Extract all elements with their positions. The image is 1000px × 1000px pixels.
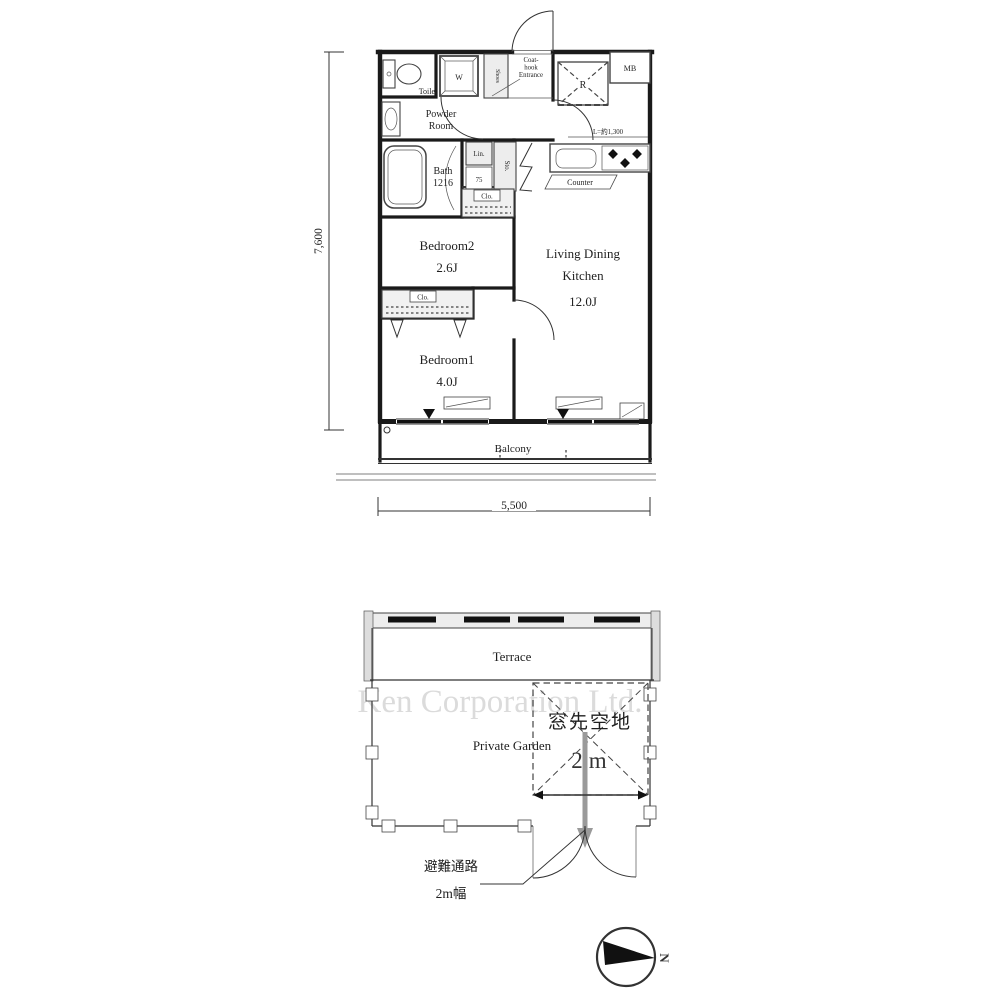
terrace: Terrace	[370, 628, 654, 680]
storage-bifold-door	[520, 143, 532, 191]
garden-gate	[533, 826, 636, 878]
entrance-label-line3: Entrance	[519, 72, 543, 79]
entrance-door-arc	[512, 11, 553, 54]
evacuation-label-leader	[480, 830, 585, 884]
height-dimension-label: 7,600	[313, 228, 325, 254]
compass-north-label: N	[657, 953, 672, 963]
toilet-fixture	[383, 60, 421, 88]
bedroom1-door-arc	[514, 300, 554, 340]
entrance-label-line1: Coat-	[523, 57, 539, 64]
entrance-label-line2: hook	[524, 65, 538, 72]
meter-box: MB	[610, 52, 650, 83]
bedroom1-closet: Clo.	[382, 290, 473, 337]
lower-site-plan: Terrace Private Garden 窓先空地 2m	[364, 611, 660, 901]
bedroom1-window	[396, 419, 489, 424]
bedroom2-closet: Clo.	[462, 189, 514, 217]
bedroom1-closet-label: Clo.	[417, 295, 429, 302]
ldk-size-label: 12.0J	[569, 294, 597, 309]
washbasin	[382, 102, 400, 136]
refrigerator-label: R	[580, 80, 587, 91]
evacuation-label-line2: 2m幅	[436, 886, 467, 901]
open-space-width-arrow	[533, 791, 648, 800]
bedroom2-size-label: 2.6J	[436, 260, 457, 275]
counter-label: Counter	[567, 178, 593, 187]
compass-needle	[603, 941, 655, 965]
open-space-width-label: 2m	[571, 748, 612, 773]
height-dimension: 7,600	[313, 52, 344, 430]
bath-label: Bath	[434, 166, 453, 177]
site-building-wall	[364, 611, 660, 681]
balcony-drain	[384, 427, 390, 433]
linen-label: Lin.	[473, 151, 484, 158]
storage-label: Sto.	[503, 161, 510, 172]
evacuation-label-line1: 避難通路	[424, 859, 478, 874]
dimension-annotations: 7,600 5,500	[313, 52, 650, 516]
ldk-label-line2: Kitchen	[562, 268, 604, 283]
balcony-label: Balcony	[495, 443, 532, 455]
ldk-label-line1: Living Dining	[546, 246, 621, 261]
linen-width-label: 75	[476, 177, 483, 184]
compass: N	[597, 928, 672, 986]
powder-room-label-line1: Powder	[426, 109, 457, 120]
bedroom1-size-label: 4.0J	[436, 374, 457, 389]
bedroom2-label: Bedroom2	[420, 238, 475, 253]
washer-label: W	[455, 73, 463, 82]
bedroom1-label: Bedroom1	[420, 352, 475, 367]
open-space-label: 窓先空地	[548, 711, 632, 733]
meter-box-label: MB	[624, 64, 636, 73]
ground-lines	[336, 474, 656, 480]
ldk-window	[547, 419, 639, 424]
kitchen-counter: L=約1,300 Counter	[545, 127, 650, 189]
terrace-label: Terrace	[493, 649, 532, 664]
width-dimension: 5,500	[378, 497, 650, 516]
toilet-label: Toilet	[419, 87, 438, 96]
balcony: Balcony	[378, 421, 652, 464]
private-garden-label: Private Garden	[473, 738, 552, 753]
upper-floor-plan: Toilet W Shoes Coat- hook Entrance R	[336, 11, 656, 480]
floor-plan-svg: Ken Corporation Ltd.	[0, 0, 1000, 1000]
powder-room-label-line2: Room	[429, 121, 454, 132]
refrigerator-space: R	[558, 62, 608, 105]
counter-length-label: L=約1,300	[593, 127, 624, 136]
floor-plan-page: Ken Corporation Ltd.	[0, 0, 1000, 1000]
shoes-label: Shoes	[494, 69, 500, 84]
pipe-space-box	[620, 403, 644, 419]
bedroom2-closet-label: Clo.	[481, 194, 493, 201]
evacuation-route-label: 避難通路 2m幅	[424, 830, 585, 901]
bath-size-label: 1216	[433, 178, 453, 189]
width-dimension-label: 5,500	[501, 500, 527, 512]
